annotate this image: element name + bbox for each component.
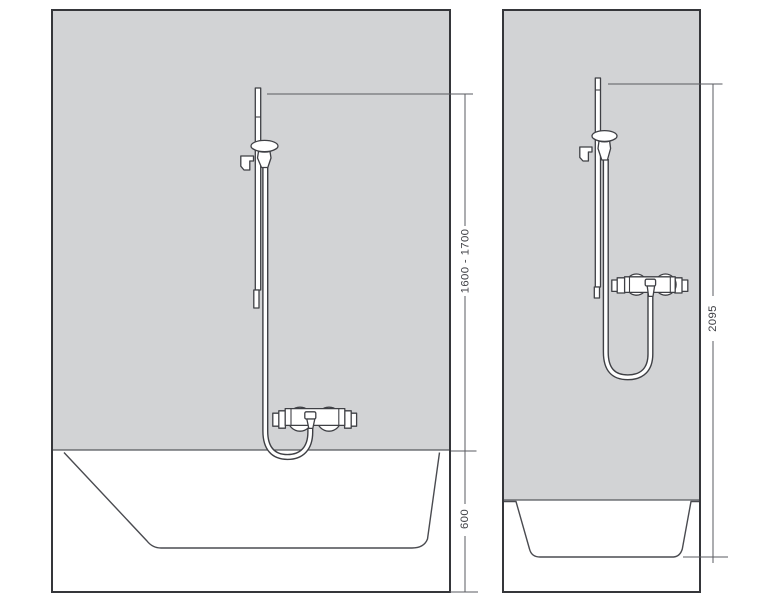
- thermostat-right-cap: [345, 411, 352, 428]
- slide-bar-end-cap: [594, 287, 599, 298]
- bathtub-outline: [64, 453, 440, 549]
- slide-bar-rail: [255, 88, 260, 290]
- thermostat-left-cap: [279, 411, 286, 428]
- installation-diagram: 1600 - 1700 600: [0, 0, 770, 600]
- thermostat-mixer: [612, 274, 688, 296]
- thermostat-outlet: [305, 412, 316, 419]
- thermostat-left-cap: [617, 278, 625, 293]
- dimension-label-bar-height: 1600 - 1700: [459, 229, 471, 294]
- dimension-label-total-height: 2095: [707, 305, 719, 332]
- left-panel-bathtub-installation: 1600 - 1700 600: [52, 10, 478, 592]
- hose-nut: [647, 286, 654, 296]
- slide-bar-rail: [595, 78, 600, 287]
- diagram-canvas: 1600 - 1700 600: [0, 0, 770, 600]
- thermostat-outlet: [645, 279, 655, 286]
- slide-bar: [254, 88, 261, 308]
- slide-bar: [594, 78, 600, 298]
- slide-bar-end-cap: [254, 290, 259, 308]
- right-panel-shower-tray-installation: 2095: [503, 10, 728, 592]
- hose-nut: [307, 419, 315, 428]
- shower-tray-outline: [503, 502, 700, 558]
- wall: [52, 10, 450, 450]
- dimension-label-tub-height: 600: [459, 509, 471, 529]
